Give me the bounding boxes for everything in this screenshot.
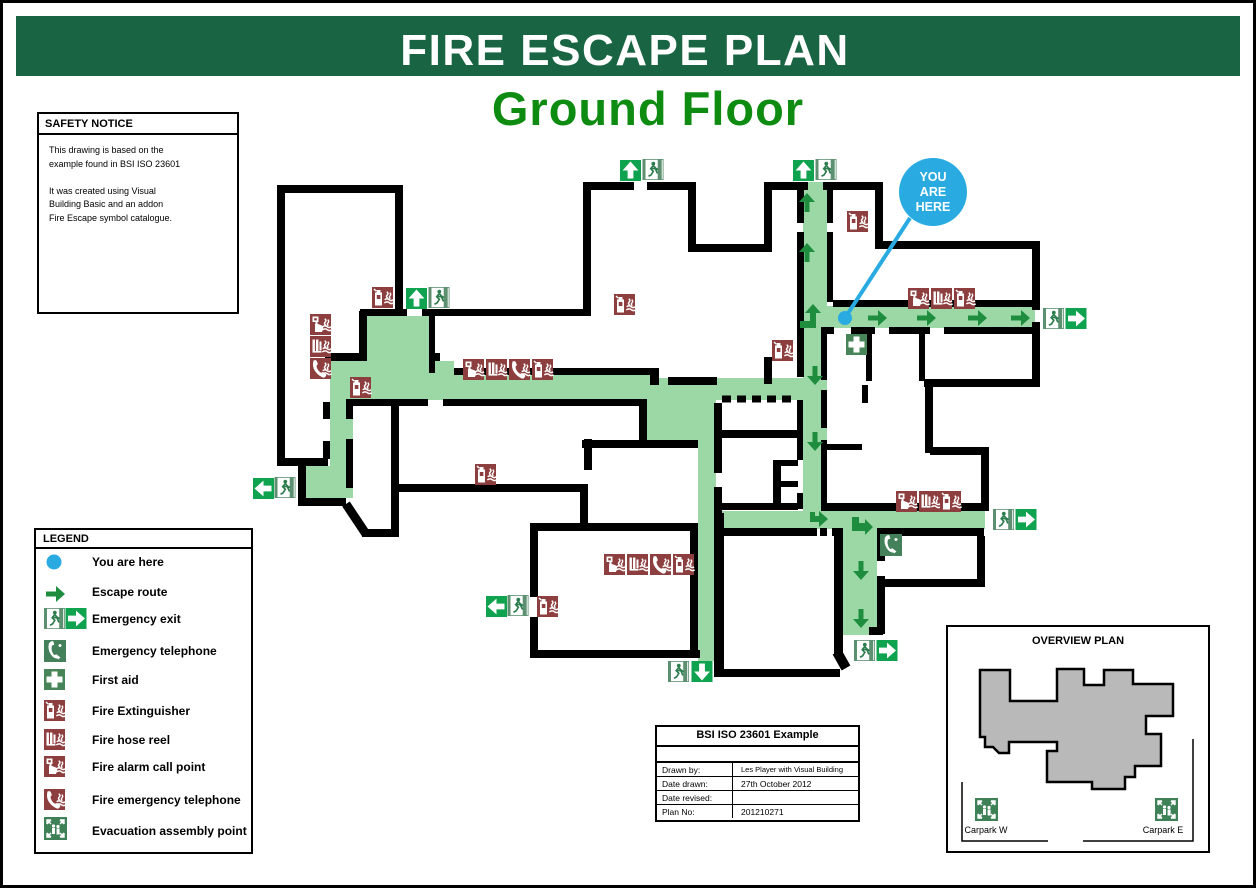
svg-text:ARE: ARE: [920, 185, 946, 199]
svg-text:YOU: YOU: [919, 170, 946, 184]
svg-text:HERE: HERE: [916, 200, 951, 214]
